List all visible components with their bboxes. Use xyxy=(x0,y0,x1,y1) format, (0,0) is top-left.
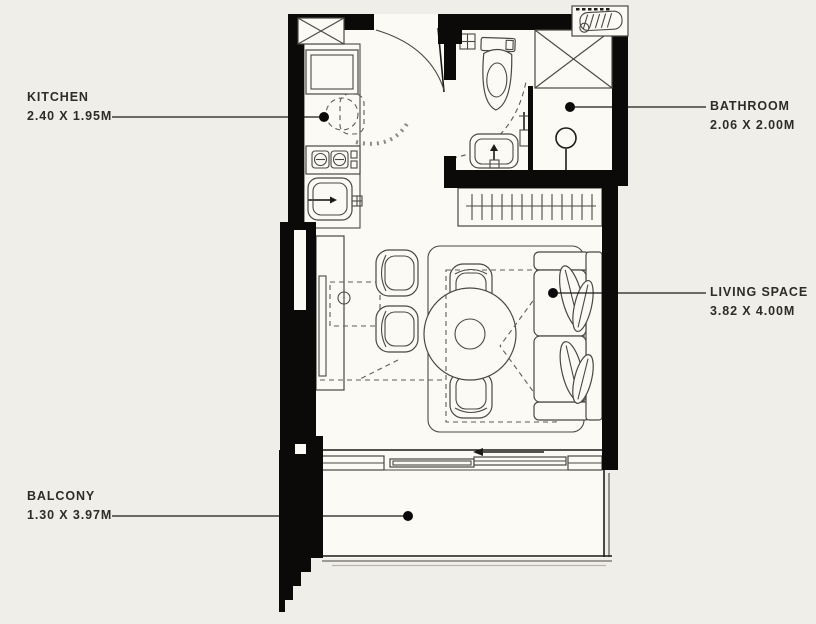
living-room-dimensions: 3.82 X 4.00M xyxy=(710,302,808,321)
chair-left-top xyxy=(376,250,418,296)
balcony-floor xyxy=(322,470,604,558)
bathroom-sink-icon xyxy=(470,134,518,168)
wall-notch xyxy=(295,444,306,454)
dining-table-icon xyxy=(424,288,516,380)
shower-partition xyxy=(528,86,533,184)
kitchen-leader-dot xyxy=(319,112,329,122)
balcony-label: BALCONY 1.30 X 3.97M xyxy=(27,487,112,525)
sofa-icon xyxy=(534,252,602,420)
fridge-icon xyxy=(306,50,358,94)
chair-left-bottom xyxy=(376,306,418,352)
ac-unit-icon xyxy=(572,6,628,36)
living-leader-dot xyxy=(548,288,558,298)
kitchen-room-name: KITCHEN xyxy=(27,88,112,107)
balcony-room-dimensions: 1.30 X 3.97M xyxy=(27,506,112,525)
stove-icon xyxy=(306,146,360,174)
floor-plan: KITCHEN 2.40 X 1.95M BATHROOM 2.06 X 2.0… xyxy=(0,0,816,624)
bathroom-leader-dot xyxy=(565,102,575,112)
party-wall-jagged xyxy=(279,450,323,612)
bathroom-room-name: BATHROOM xyxy=(710,97,795,116)
balcony-leader-dot xyxy=(403,511,413,521)
wall-slot xyxy=(294,230,306,310)
duct-shaft-icon xyxy=(535,30,612,88)
service-shaft-icon xyxy=(298,18,344,44)
living-space-label: LIVING SPACE 3.82 X 4.00M xyxy=(710,283,808,321)
wardrobe-icon xyxy=(458,188,602,226)
living-room-name: LIVING SPACE xyxy=(710,283,808,302)
kitchen-room-dimensions: 2.40 X 1.95M xyxy=(27,107,112,126)
balcony-room-name: BALCONY xyxy=(27,487,112,506)
bathroom-room-dimensions: 2.06 X 2.00M xyxy=(710,116,795,135)
kitchen-label: KITCHEN 2.40 X 1.95M xyxy=(27,88,112,126)
floor-plan-drawing xyxy=(0,0,816,624)
bathroom-label: BATHROOM 2.06 X 2.00M xyxy=(710,97,795,135)
